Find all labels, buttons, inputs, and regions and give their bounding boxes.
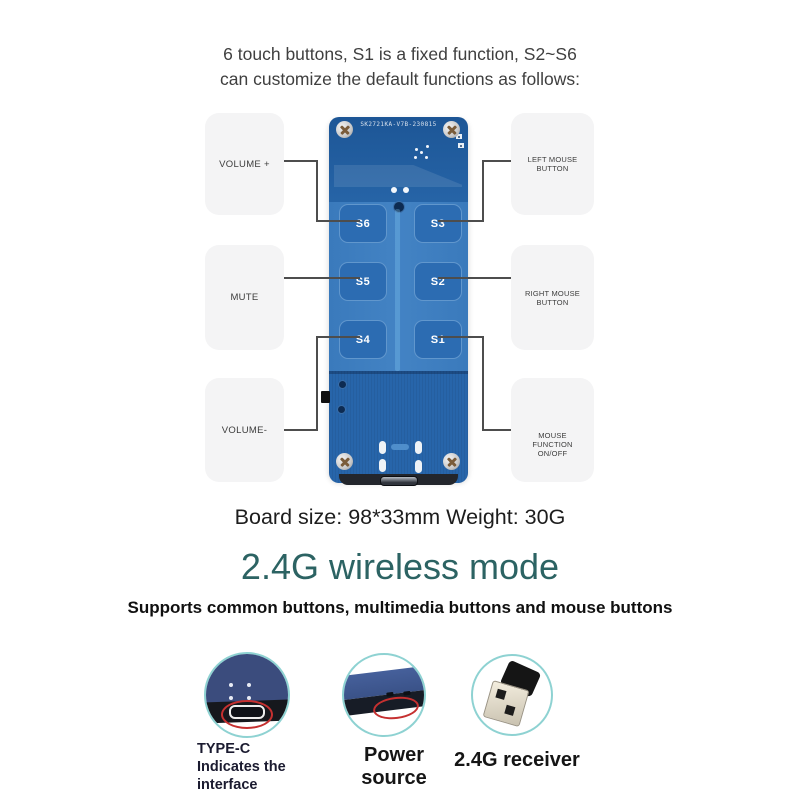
- via-dots-cluster: [415, 148, 418, 151]
- connector-line: [283, 160, 318, 162]
- connector-dot: [403, 691, 410, 696]
- connector-line: [316, 336, 318, 431]
- touch-pad-s3: S3: [414, 204, 462, 243]
- connector-line: [438, 277, 512, 279]
- intro-line-1: 6 touch buttons, S1 is a fixed function,…: [0, 42, 800, 67]
- board-bottom-edge: [339, 474, 458, 485]
- callout-mouse-function: MOUSE FUNCTION ON/OFF: [511, 378, 594, 482]
- callout-volume-plus: VOLUME +: [205, 113, 284, 215]
- feature-label-receiver: 2.4G receiver: [453, 749, 581, 772]
- touch-pad-s1: S1: [414, 320, 462, 359]
- connector-line: [316, 336, 360, 338]
- mount-pad-square: [458, 143, 464, 148]
- touch-pad-s4: S4: [339, 320, 387, 359]
- pcb-slot: [391, 444, 409, 450]
- connector-dot: [386, 692, 393, 697]
- callout-left-mouse-button: LEFT MOUSE BUTTON: [511, 113, 594, 215]
- solder-pad: [415, 460, 422, 473]
- solder-pad: [379, 459, 386, 472]
- usb-dongle-photo-icon: [471, 654, 553, 736]
- pcb-closeup: [204, 652, 290, 705]
- intro-text: 6 touch buttons, S1 is a fixed function,…: [0, 42, 800, 93]
- touch-pad-s2: S2: [414, 262, 462, 301]
- callout-mute: MUTE: [205, 245, 284, 350]
- via-hole: [337, 405, 346, 414]
- feature-label-power-source: Power source: [332, 744, 456, 790]
- screw-icon: [336, 121, 353, 138]
- callout-volume-minus: VOLUME-: [205, 378, 284, 482]
- callout-right-mouse-button: RIGHT MOUSE BUTTON: [511, 245, 594, 350]
- solder-pad: [379, 441, 386, 454]
- feature-label-type-c: TYPE-C Indicates the interface: [197, 740, 313, 794]
- connector-line: [482, 336, 484, 431]
- touch-pad-s5: S5: [339, 262, 387, 301]
- wireless-mode-title: 2.4G wireless mode: [0, 546, 800, 588]
- intro-line-2: can customize the default functions as f…: [0, 67, 800, 92]
- screw-icon: [443, 121, 460, 138]
- connector-line: [316, 160, 318, 222]
- wireless-mode-subtitle: Supports common buttons, multimedia butt…: [0, 598, 800, 618]
- screw-icon: [336, 453, 353, 470]
- connector-line: [438, 220, 483, 222]
- pad-dot: [403, 187, 409, 193]
- usb-dongle: [483, 659, 542, 729]
- callout-label: MOUSE FUNCTION ON/OFF: [517, 431, 588, 458]
- connector-line: [438, 336, 483, 338]
- connector-line: [283, 429, 317, 431]
- callout-label: MUTE: [230, 292, 258, 303]
- connector-line: [482, 160, 512, 162]
- connector-line: [482, 429, 512, 431]
- type-c-port-photo-icon: [204, 652, 290, 738]
- usb-c-port: [380, 476, 418, 486]
- connector-line: [482, 160, 484, 222]
- pcb-trace-band: [334, 165, 462, 187]
- board-size-text: Board size: 98*33mm Weight: 30G: [0, 505, 800, 530]
- circuit-board-photo: SK2721KA-V7B-230815 S6 S3 S5 S2 S4 S1: [329, 117, 468, 480]
- callout-label: RIGHT MOUSE BUTTON: [517, 289, 588, 307]
- usb-plug-hole: [504, 705, 515, 716]
- pad-dot: [391, 187, 397, 193]
- via-hole: [338, 380, 347, 389]
- side-switch: [321, 391, 330, 403]
- product-infographic: 6 touch buttons, S1 is a fixed function,…: [0, 0, 800, 800]
- pad-dot: [229, 683, 233, 687]
- connector-line: [316, 220, 360, 222]
- connector-line: [283, 277, 360, 279]
- usb-plug-hole: [495, 689, 506, 700]
- touch-pad-s6: S6: [339, 204, 387, 243]
- screw-icon: [443, 453, 460, 470]
- red-highlight-ellipse: [221, 700, 273, 729]
- solder-pad: [415, 441, 422, 454]
- callout-label: LEFT MOUSE BUTTON: [517, 155, 588, 173]
- callout-label: VOLUME-: [222, 425, 267, 436]
- callout-label: VOLUME +: [219, 159, 270, 170]
- board-edge-photo-icon: [342, 653, 426, 737]
